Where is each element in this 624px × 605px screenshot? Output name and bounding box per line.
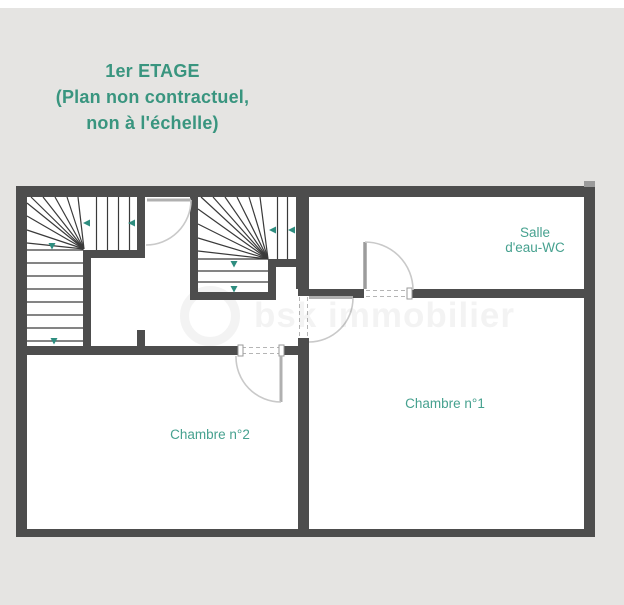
wall-left [16,186,27,537]
room-label-bedroom1: Chambre n°1 [365,396,525,411]
wall-left-stair-side [83,250,91,355]
wall-bedroom-divider [298,338,309,529]
bathroom-label-line-2: d'eau-WC [455,240,615,255]
wall-mid-stair-stub [268,259,296,267]
wall-bedroom2-top-left [16,346,240,355]
wall-mid-stair-left [190,197,198,300]
door-jamb [279,345,284,356]
floor-plan-drawing [0,0,624,605]
wall-vestibule-left-upper [137,197,145,258]
wall-top-right-notch [584,181,595,187]
doorway-gap [298,296,309,338]
wall-bathroom-left [296,197,309,289]
wall-top [16,186,595,197]
room-label-bedroom2: Chambre n°2 [130,427,290,442]
door-jamb [407,288,412,299]
wall-under-upper-flight [83,250,145,258]
floor-plan-page: 1er ETAGE (Plan non contractuel, non à l… [0,0,624,605]
wall-bathroom-bottom-right [411,289,584,298]
door-jamb [238,345,243,356]
wall-mid-stair-cap [198,292,276,300]
wall-bedroom2-top-right [284,346,309,355]
room-label-bathroom: Salle d'eau-WC [455,225,615,255]
bedroom2-label: Chambre n°2 [170,427,250,442]
bedroom1-label: Chambre n°1 [405,396,485,411]
bathroom-label-line-1: Salle [455,225,615,240]
wall-bottom [16,529,595,537]
